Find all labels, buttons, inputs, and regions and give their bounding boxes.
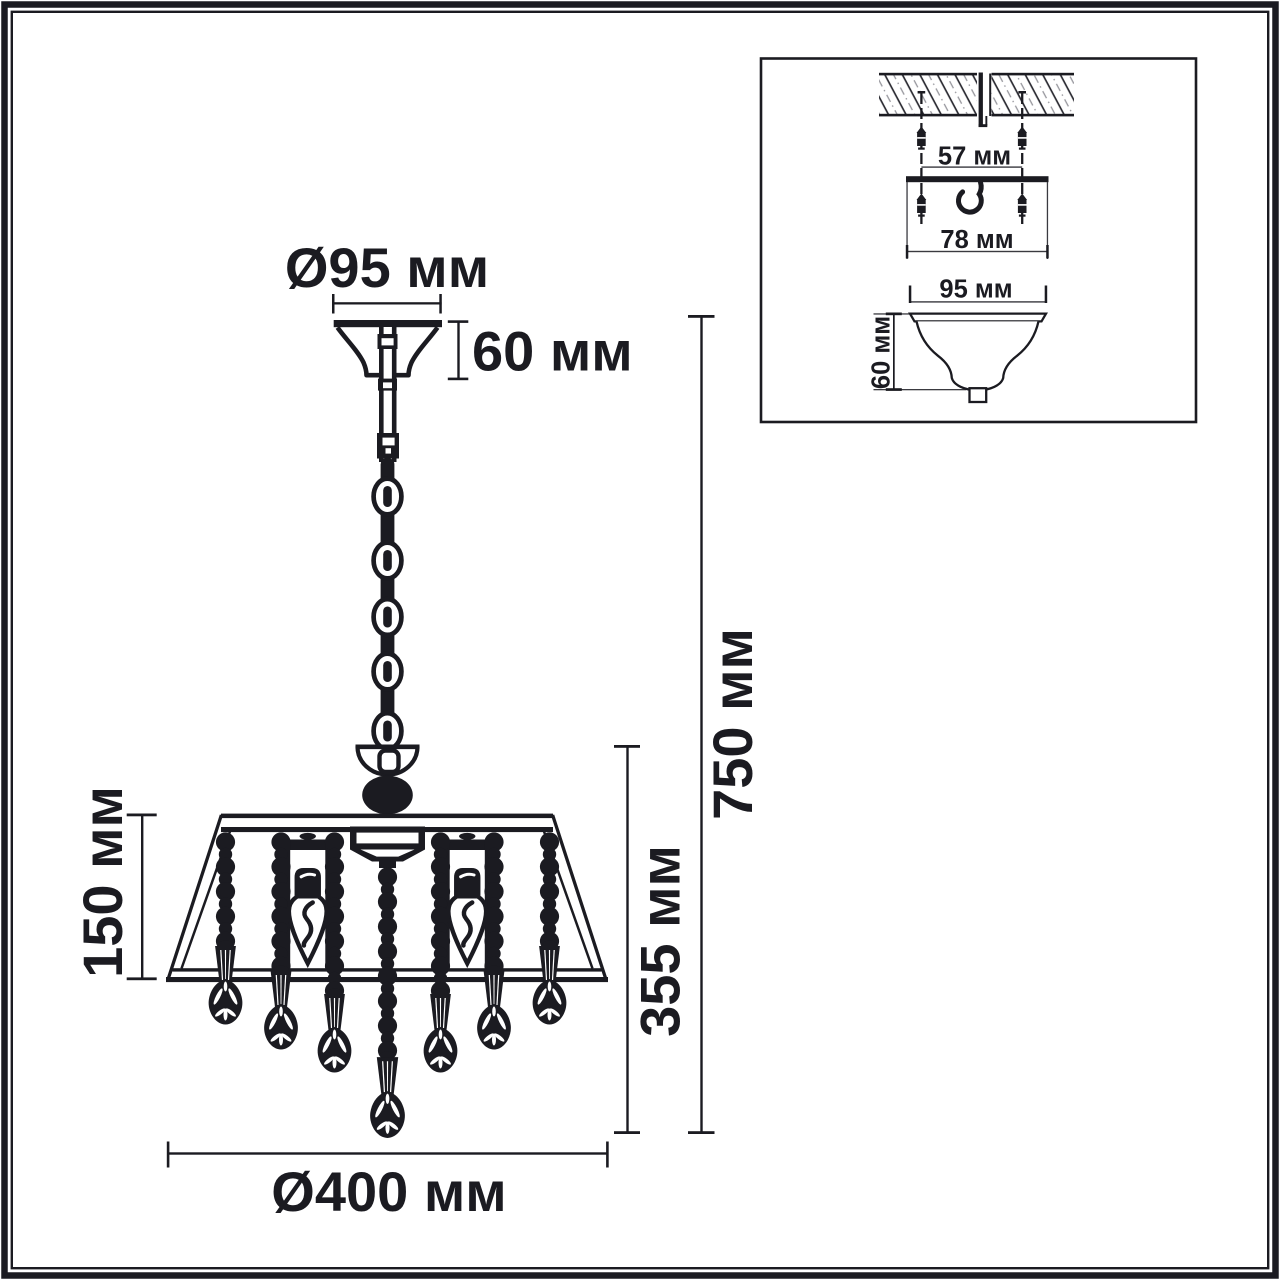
svg-text:95 мм: 95 мм <box>939 276 1012 304</box>
svg-text:355 мм: 355 мм <box>629 845 692 1037</box>
svg-text:57 мм: 57 мм <box>938 143 1011 171</box>
svg-text:150 мм: 150 мм <box>71 786 134 978</box>
svg-text:Ø95 мм: Ø95 мм <box>285 236 489 299</box>
svg-text:Ø400 мм: Ø400 мм <box>271 1160 506 1223</box>
svg-text:60 мм: 60 мм <box>868 316 896 389</box>
svg-text:60 мм: 60 мм <box>472 320 633 383</box>
svg-text:750 мм: 750 мм <box>701 628 764 820</box>
svg-text:78 мм: 78 мм <box>940 226 1013 254</box>
